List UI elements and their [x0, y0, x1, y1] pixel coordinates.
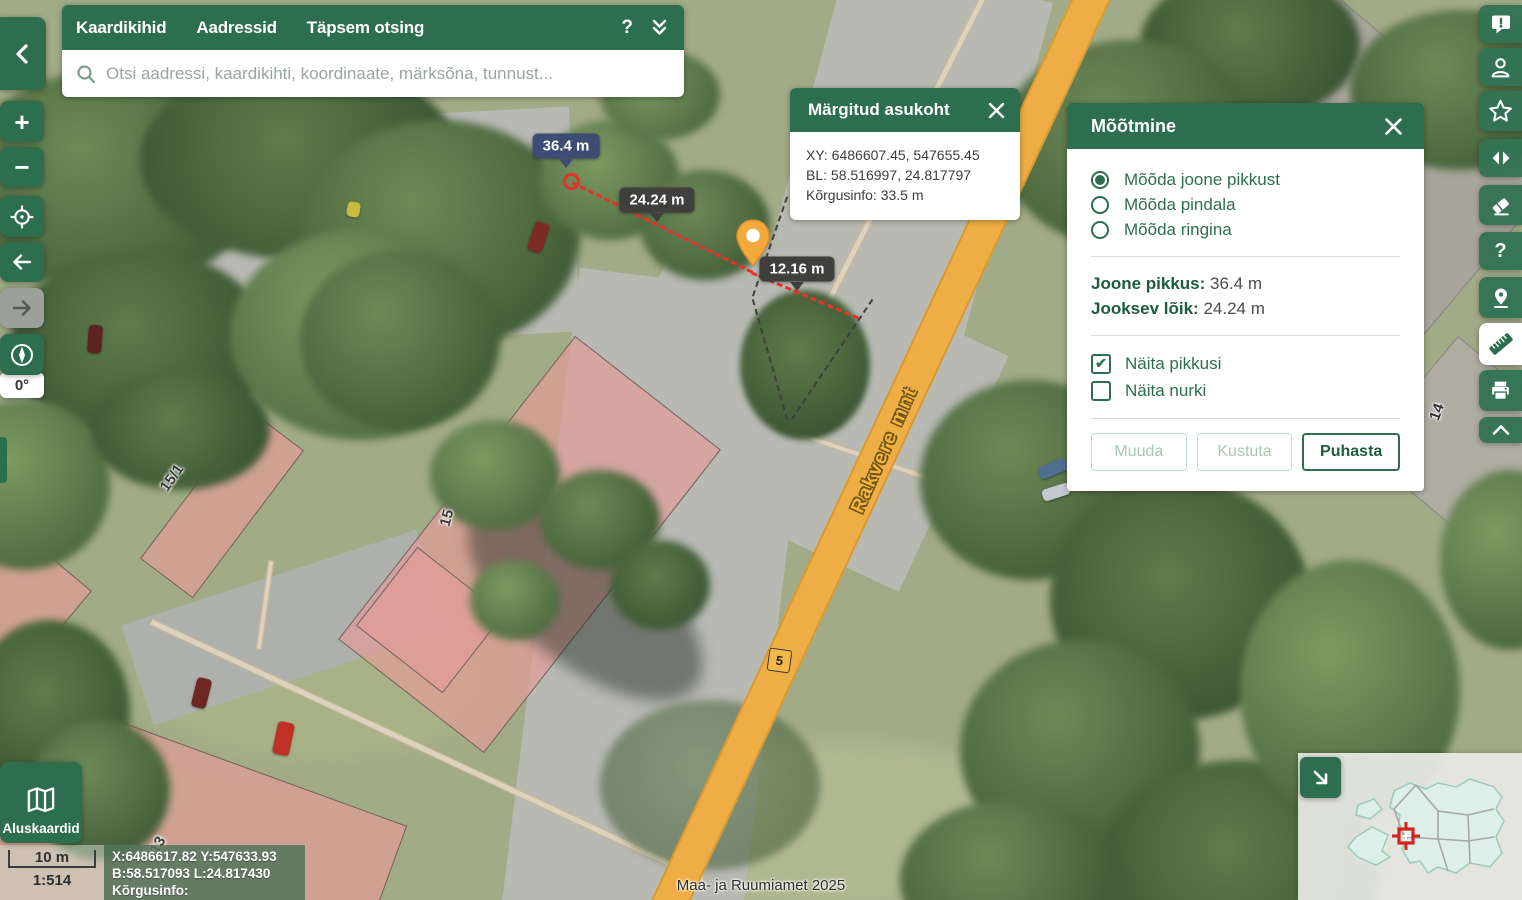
edit-button[interactable]: Muuda — [1091, 433, 1187, 471]
crosshair-icon — [9, 204, 35, 230]
measure-label-pointer — [790, 282, 804, 291]
search-icon — [75, 63, 97, 85]
double-chevron-down-icon[interactable] — [649, 17, 670, 39]
measure-label-total: 36.4 m — [533, 134, 600, 159]
left-edge-tab[interactable] — [0, 437, 7, 483]
menu-tapsem-otsing[interactable]: Täpsem otsing — [307, 18, 424, 38]
marked-location-title: Märgitud asukoht — [808, 100, 987, 120]
scale-ratio: 1:514 — [33, 872, 71, 889]
measure-label-segment: 24.24 m — [619, 188, 694, 213]
checkbox-icon — [1091, 381, 1111, 401]
coord-bl: B:58.517093 L:24.817430 — [112, 865, 297, 882]
chevron-up-icon — [1490, 422, 1512, 438]
measurement-panel: Mõõtmine Mõõda joone pikkust Mõõda pinda… — [1067, 103, 1424, 491]
checkbox-show-lengths[interactable]: Näita pikkusi — [1091, 350, 1400, 377]
measure-label-current: 12.16 m — [759, 257, 834, 282]
option-measure-line[interactable]: Mõõda joone pikkust — [1091, 167, 1400, 192]
measure-label-pointer — [650, 213, 664, 222]
result-label: Joone pikkus: — [1091, 274, 1205, 293]
feedback-bubble-icon — [1489, 12, 1513, 36]
minus-icon: − — [14, 154, 29, 180]
cursor-coordinates-readout: X:6486617.82 Y:547633.93 B:58.517093 L:2… — [104, 845, 305, 900]
car — [87, 324, 103, 353]
menu-aadressid[interactable]: Aadressid — [196, 18, 276, 38]
option-label: Mõõda joone pikkust — [1124, 170, 1280, 190]
scale-indicator: 10 m 1:514 — [0, 845, 104, 900]
user-icon — [1488, 55, 1513, 80]
collapse-panel-button[interactable] — [0, 17, 46, 90]
folded-map-icon — [24, 785, 58, 815]
result-value: 36.4 m — [1205, 274, 1262, 293]
marked-location-xy: XY: 6486607.45, 547655.45 — [806, 145, 1004, 165]
marked-location-elevation: Kõrgusinfo: 33.5 m — [806, 185, 1004, 205]
collapse-sidebar-button[interactable] — [1479, 417, 1522, 443]
result-running-segment: Jooksev lõik: 24.24 m — [1091, 296, 1400, 321]
close-icon[interactable] — [1383, 116, 1404, 137]
bookmarks-button[interactable] — [1479, 91, 1522, 131]
search-panel: Kaardikihid Aadressid Täpsem otsing ? — [62, 5, 684, 97]
map-pin-icon — [1489, 286, 1513, 310]
radio-selected-icon — [1091, 171, 1109, 189]
result-label: Jooksev lõik: — [1091, 299, 1199, 318]
option-label: Mõõda pindala — [1124, 195, 1236, 215]
compare-layers-button[interactable] — [1479, 139, 1522, 177]
measurement-buttons: Muuda Kustuta Puhasta — [1091, 433, 1400, 471]
feedback-button[interactable] — [1479, 5, 1522, 43]
history-forward-button[interactable] — [0, 288, 44, 328]
arrow-down-right-icon — [1309, 766, 1333, 790]
ruler-icon — [1487, 330, 1515, 358]
option-measure-area[interactable]: Mõõda pindala — [1091, 192, 1400, 217]
checkbox-show-angles[interactable]: Näita nurki — [1091, 377, 1400, 404]
checkbox-label: Näita nurki — [1125, 381, 1206, 401]
checkbox-label: Näita pikkusi — [1125, 354, 1221, 374]
search-input[interactable] — [106, 64, 671, 84]
coord-xy: X:6486617.82 Y:547633.93 — [112, 848, 297, 865]
measurement-header: Mõõtmine — [1067, 103, 1424, 149]
printer-icon — [1488, 378, 1513, 403]
geolocate-button[interactable] — [0, 196, 44, 237]
help-icon[interactable]: ? — [621, 17, 633, 39]
option-measure-circle[interactable]: Mõõda ringina — [1091, 217, 1400, 242]
measure-endpoint-marker[interactable] — [563, 173, 580, 190]
compare-arrows-icon — [1489, 146, 1513, 170]
menu-kaardikihid[interactable]: Kaardikihid — [76, 18, 166, 38]
arrow-left-icon — [10, 250, 34, 274]
user-account-button[interactable] — [1479, 48, 1522, 86]
delete-button[interactable]: Kustuta — [1197, 433, 1293, 471]
chevron-left-icon — [12, 40, 34, 68]
map-attribution: Maa- ja Ruumiamet 2025 — [677, 877, 845, 894]
compass-icon — [8, 341, 36, 369]
plus-icon: + — [14, 109, 29, 135]
checkbox-checked-icon — [1091, 354, 1111, 374]
result-value: 24.24 m — [1199, 299, 1265, 318]
mark-location-button[interactable] — [1479, 277, 1522, 318]
measure-tool-button[interactable] — [1479, 323, 1522, 365]
scale-bar: 10 m — [8, 850, 96, 868]
tree — [300, 250, 500, 430]
radio-icon — [1091, 196, 1109, 214]
coord-elevation: Kõrgusinfo: — [112, 882, 297, 899]
scale-distance: 10 m — [35, 850, 69, 865]
sidebar-help-button[interactable]: ? — [1479, 232, 1522, 270]
compass-button[interactable] — [0, 334, 44, 375]
measurement-body: Mõõda joone pikkust Mõõda pindala Mõõda … — [1067, 149, 1424, 491]
tree — [610, 540, 710, 630]
road-number-badge: 5 — [767, 648, 793, 674]
print-button[interactable] — [1479, 370, 1522, 411]
marked-location-bl: BL: 58.516997, 24.817797 — [806, 165, 1004, 185]
measure-label-pointer — [559, 159, 573, 168]
zoom-out-button[interactable]: − — [0, 147, 44, 187]
result-line-length: Joone pikkus: 36.4 m — [1091, 271, 1400, 296]
marked-location-header: Märgitud asukoht — [790, 88, 1020, 132]
overview-collapse-button[interactable] — [1300, 757, 1341, 798]
marked-location-body: XY: 6486607.45, 547655.45 BL: 58.516997,… — [790, 132, 1020, 220]
tree — [470, 560, 560, 640]
zoom-in-button[interactable]: + — [0, 101, 44, 142]
eraser-icon — [1488, 193, 1513, 218]
clear-button[interactable]: Puhasta — [1302, 433, 1400, 471]
search-bar — [62, 50, 684, 97]
basemap-label: Aluskaardid — [2, 821, 79, 836]
measurement-title: Mõõtmine — [1091, 116, 1383, 137]
basemap-selector-button[interactable]: Aluskaardid — [0, 762, 82, 843]
radio-icon — [1091, 221, 1109, 239]
question-mark-icon: ? — [1494, 240, 1506, 263]
star-icon — [1487, 98, 1514, 125]
option-label: Mõõda ringina — [1124, 220, 1232, 240]
rotation-reset-button[interactable]: 0° — [0, 372, 44, 398]
top-menu-bar: Kaardikihid Aadressid Täpsem otsing ? — [62, 5, 684, 50]
marked-location-popup: Märgitud asukoht XY: 6486607.45, 547655.… — [790, 88, 1020, 220]
history-back-button[interactable] — [0, 242, 44, 282]
close-icon[interactable] — [987, 101, 1006, 120]
arrow-right-icon — [10, 296, 34, 320]
eraser-button[interactable] — [1479, 185, 1522, 225]
